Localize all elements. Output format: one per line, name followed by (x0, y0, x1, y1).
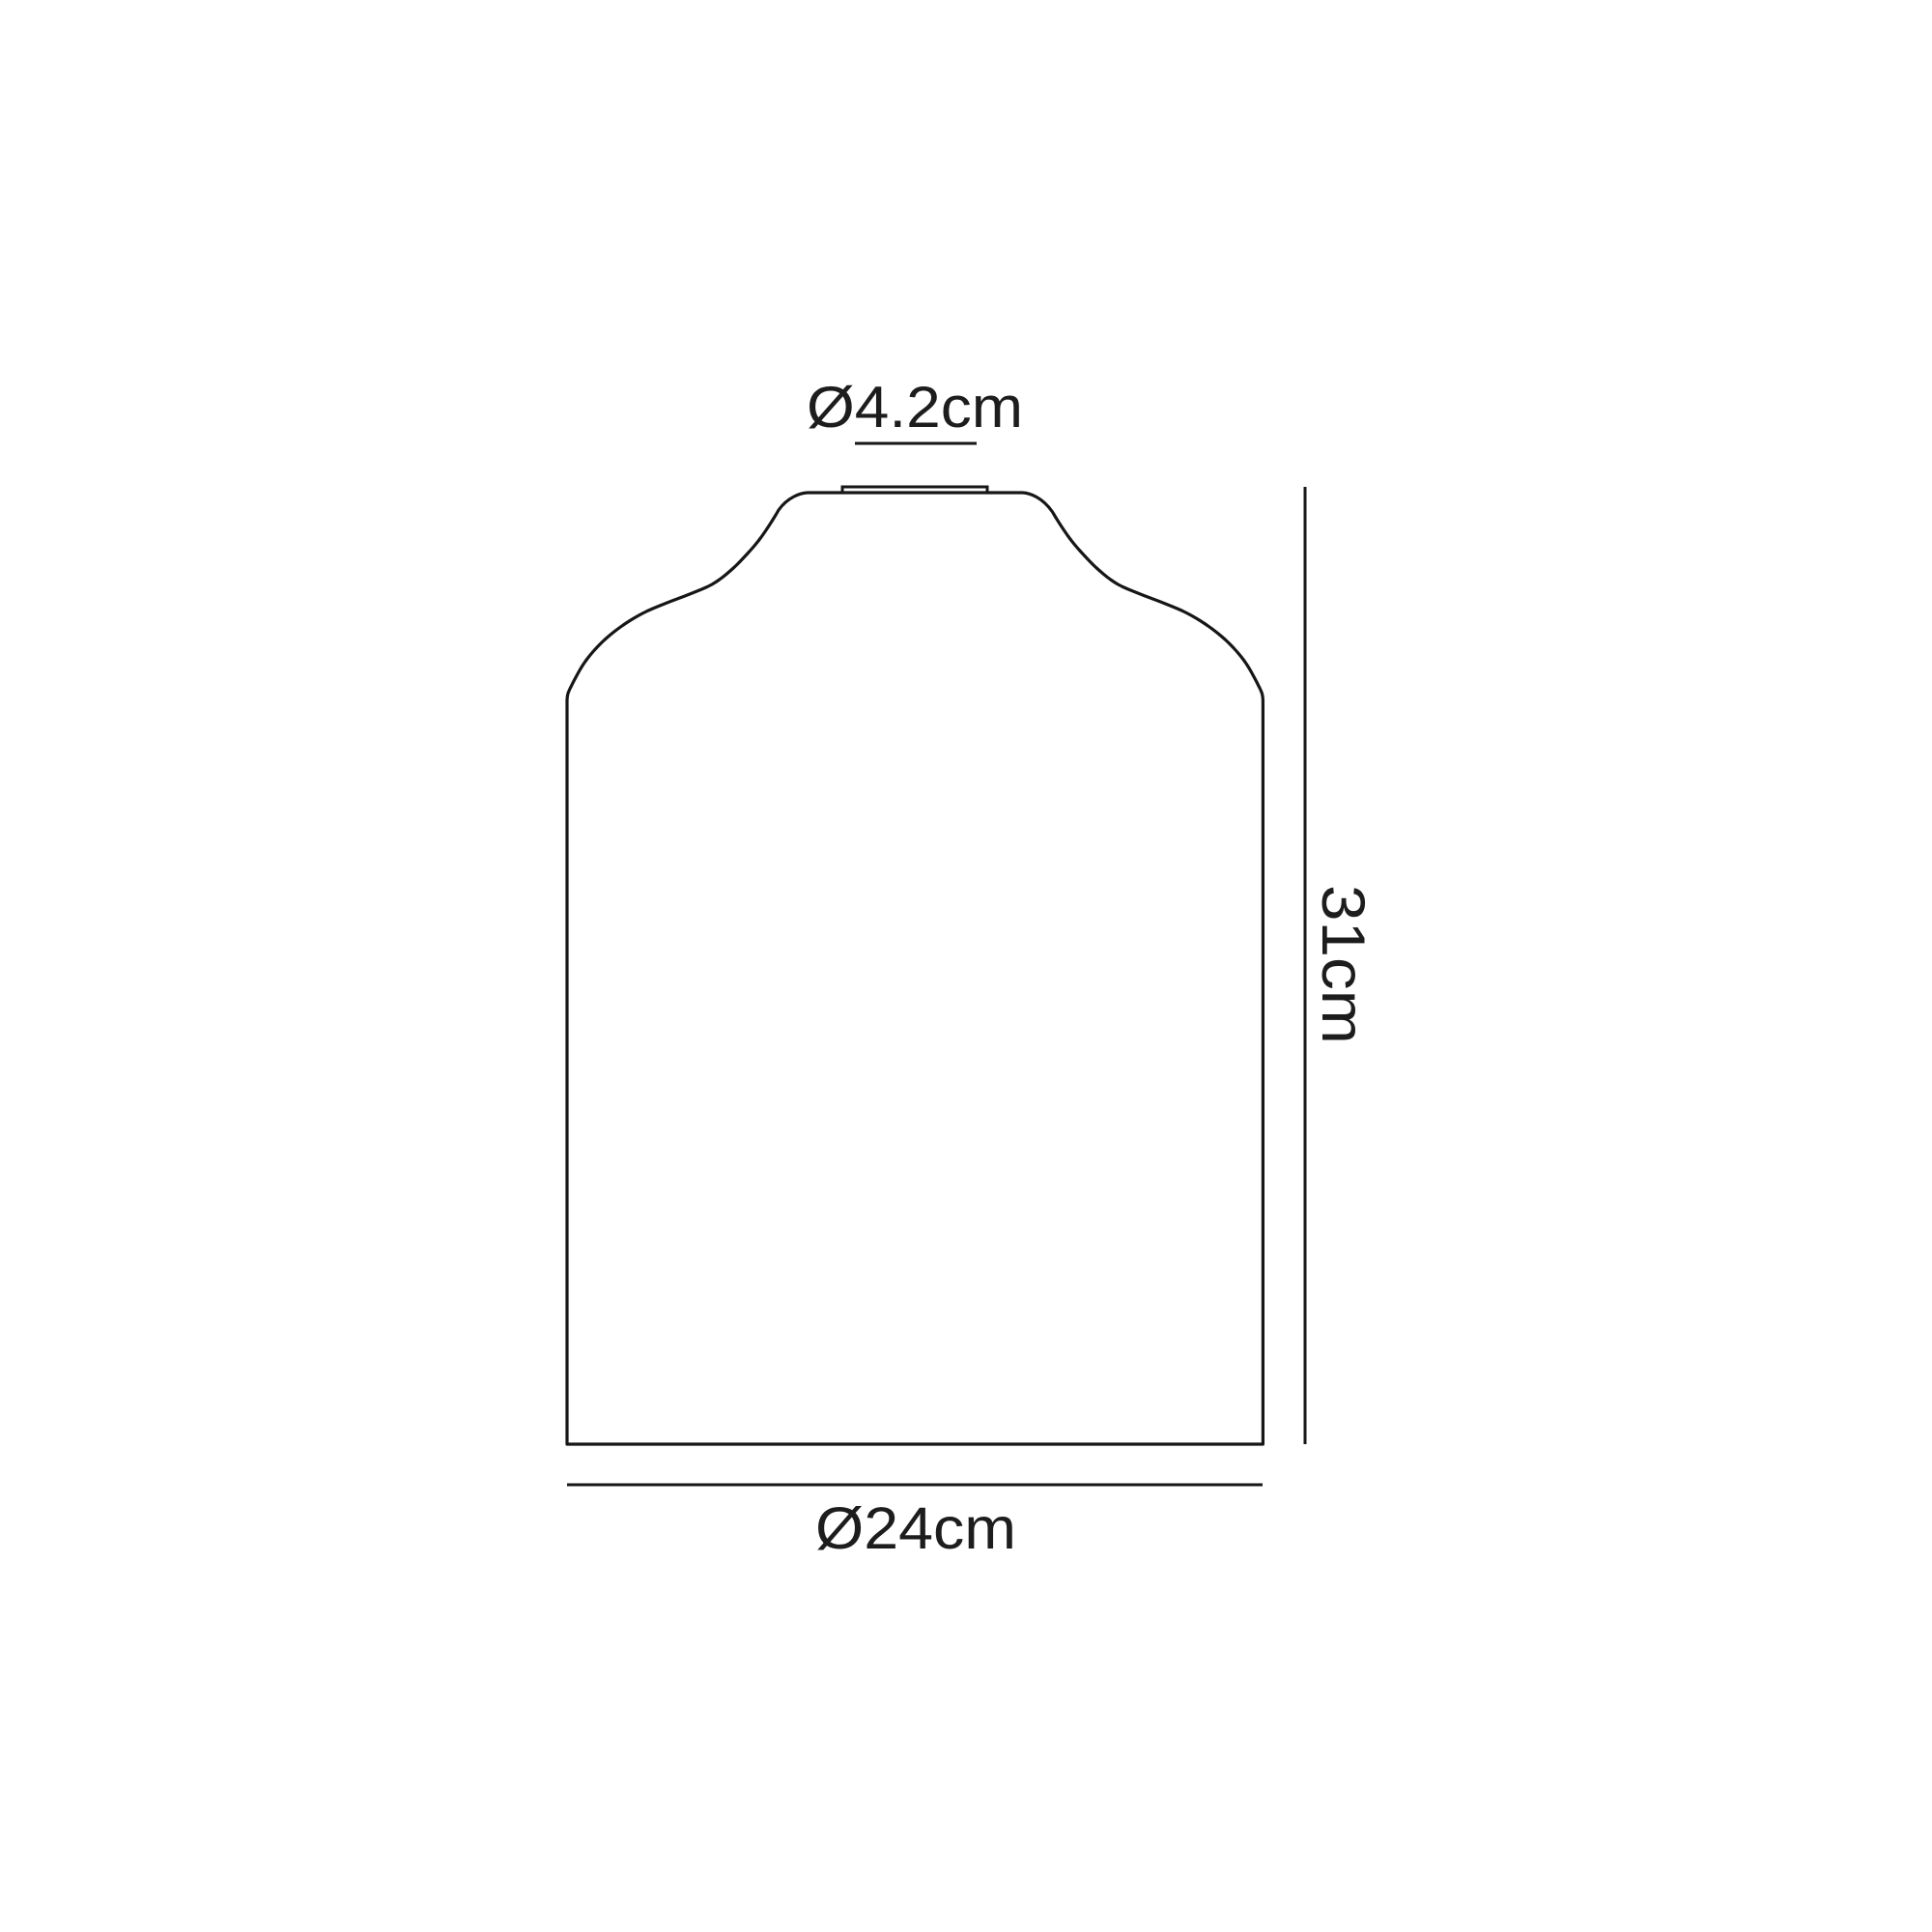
svg-text:Ø4.2cm: Ø4.2cm (807, 375, 1023, 440)
svg-text:31cm: 31cm (1309, 885, 1377, 1044)
svg-text:Ø24cm: Ø24cm (815, 1495, 1016, 1561)
